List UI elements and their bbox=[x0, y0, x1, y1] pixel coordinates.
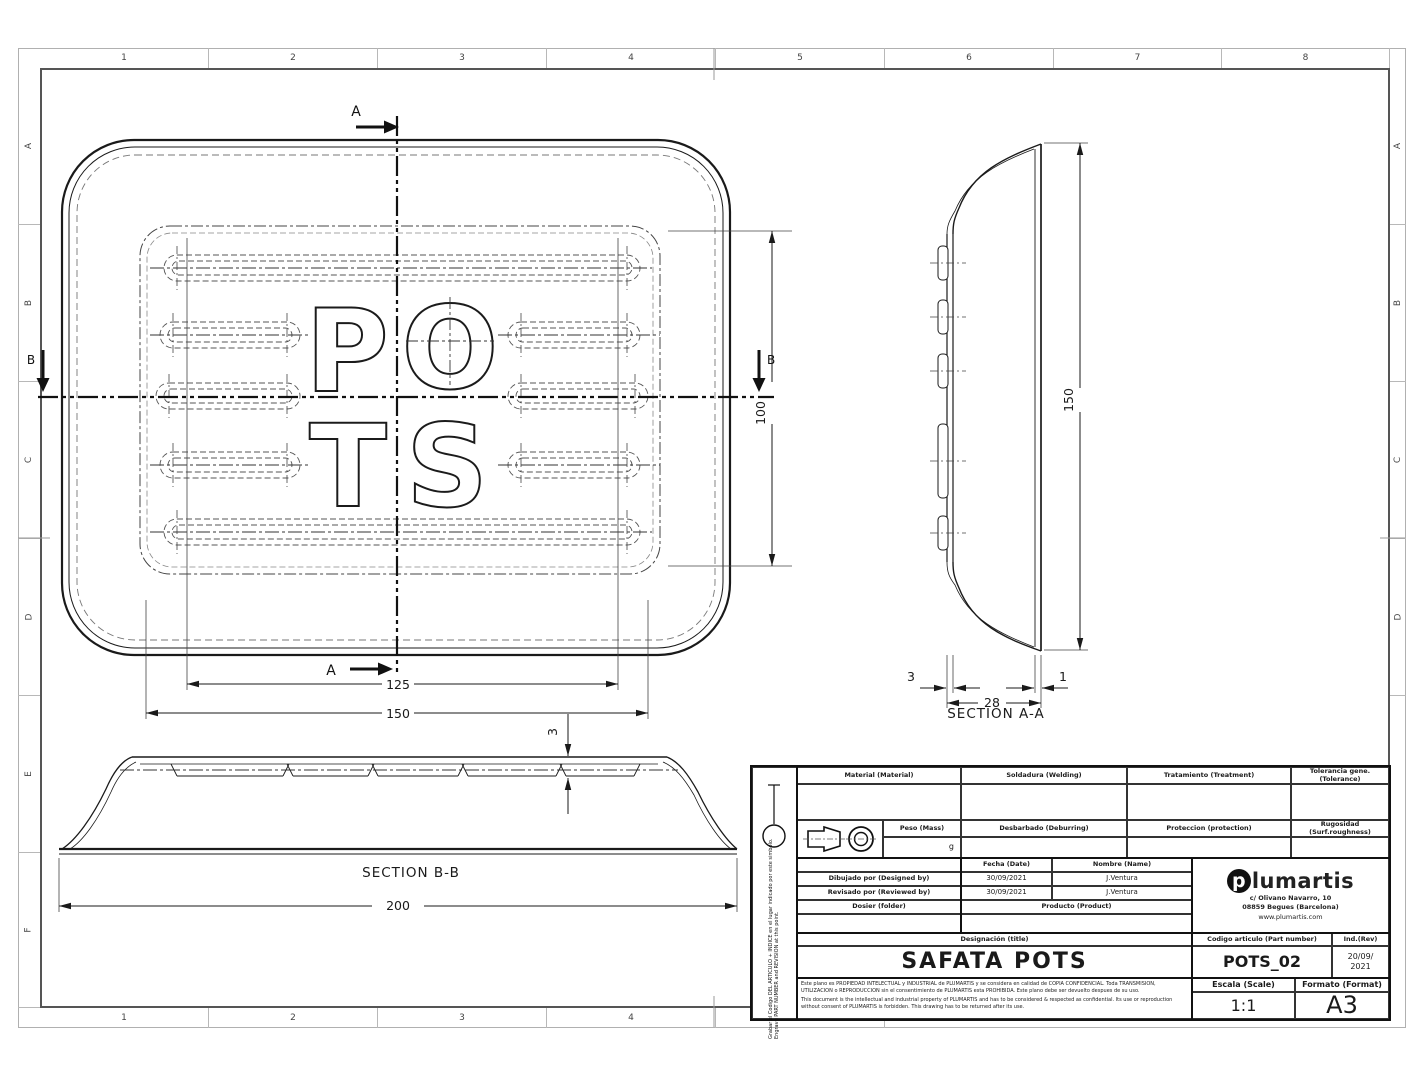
section-arrow-a-bottom: A bbox=[326, 663, 393, 680]
reviewed-name: J.Ventura bbox=[1052, 886, 1192, 900]
drawing-sheet: 1 2 3 4 5 6 7 8 1 2 3 4 5 A B C D E F A … bbox=[0, 0, 1424, 1075]
format-label: Formato (Format) bbox=[1295, 978, 1389, 992]
protection-label: Proteccion (protection) bbox=[1127, 820, 1291, 837]
title-block: Grabar el Codigo DEL ARTICULO + INDICE e… bbox=[750, 765, 1391, 1021]
scale-value: 1:1 bbox=[1192, 992, 1295, 1019]
section-label-b-left: B bbox=[27, 353, 35, 367]
company-website: www.plumartis.com bbox=[1242, 913, 1339, 922]
section-label-b-right: B bbox=[767, 353, 775, 367]
partnumber-value: POTS_02 bbox=[1192, 946, 1332, 978]
section-aa-title: SECTION A-A bbox=[947, 706, 1045, 722]
aa-extension-lines bbox=[947, 143, 1088, 708]
company-logo: plumartis bbox=[1227, 869, 1354, 893]
top-view: P O T S A A bbox=[27, 104, 792, 721]
dim-pattern-width: 125 bbox=[386, 677, 410, 692]
dim-bb-length: 200 bbox=[386, 898, 410, 913]
aa-profile bbox=[947, 144, 1041, 651]
material-value bbox=[797, 784, 961, 820]
emboss-letter-s: S bbox=[406, 400, 488, 533]
mass-label: Peso (Mass) bbox=[883, 820, 961, 837]
section-bb-title: SECTION B-B bbox=[362, 865, 460, 881]
format-value: A3 bbox=[1295, 992, 1389, 1019]
emboss-letters: P O T S bbox=[305, 282, 498, 533]
divider bbox=[1191, 858, 1193, 1019]
section-arrow-b-left: B bbox=[27, 350, 50, 392]
product-value bbox=[961, 914, 1192, 933]
partnumber-label: Codigo articulo (Part number) bbox=[1192, 933, 1332, 946]
legal-notice: Este plano es PROPIEDAD INTELECTUAL y IN… bbox=[797, 978, 1192, 1019]
tolerance-value bbox=[1291, 784, 1389, 820]
company-address: c/ Olivano Navarro, 10 08859 Begues (Bar… bbox=[1242, 894, 1339, 921]
protection-value bbox=[1127, 837, 1291, 858]
designation-value: SAFATA POTS bbox=[797, 946, 1192, 978]
emboss-letter-t: T bbox=[309, 400, 387, 533]
deburring-label: Desbarbado (Deburring) bbox=[961, 820, 1127, 837]
aa-dim-lines bbox=[920, 143, 1080, 703]
divider bbox=[797, 932, 1389, 934]
roughness-label: Rugosidad (Surf.roughness) bbox=[1291, 820, 1389, 837]
dim-bb-rib: 3 bbox=[545, 728, 560, 736]
treatment-value bbox=[1127, 784, 1291, 820]
folder-label: Dosier (folder) bbox=[797, 900, 961, 914]
name-label: Nombre (Name) bbox=[1052, 858, 1192, 872]
bb-profile bbox=[59, 757, 737, 854]
divider bbox=[960, 858, 962, 933]
product-label: Producto (Product) bbox=[961, 900, 1192, 914]
section-label-a-top: A bbox=[351, 104, 361, 120]
welding-label: Soldadura (Welding) bbox=[961, 767, 1127, 784]
company-address-line2: 08859 Begues (Barcelona) bbox=[1242, 903, 1339, 912]
sig-blank bbox=[797, 858, 961, 872]
welding-value bbox=[961, 784, 1127, 820]
company-block: plumartis c/ Olivano Navarro, 10 08859 B… bbox=[1192, 858, 1389, 933]
folder-value bbox=[797, 914, 961, 933]
designation-label: Designación (title) bbox=[797, 933, 1192, 946]
section-bb-view: 3 200 SECTION B-B bbox=[59, 714, 737, 913]
scale-label: Escala (Scale) bbox=[1192, 978, 1295, 992]
section-arrow-a-top: A bbox=[351, 104, 399, 134]
reviewed-label: Revisado por (Reviewed by) bbox=[797, 886, 961, 900]
logo-wordmark: lumartis bbox=[1252, 870, 1354, 893]
dim-aa-lip: 1 bbox=[1059, 669, 1067, 684]
material-label: Material (Material) bbox=[797, 767, 961, 784]
rev-value-line1: 20/09/ bbox=[1348, 952, 1374, 962]
section-aa-view: 150 3 28 1 SECTION A-A bbox=[907, 143, 1088, 722]
date-label: Fecha (Date) bbox=[961, 858, 1052, 872]
legal-notice-es: Este plano es PROPIEDAD INTELECTUAL y IN… bbox=[801, 981, 1188, 994]
deburring-value bbox=[961, 837, 1127, 858]
company-address-line1: c/ Olivano Navarro, 10 bbox=[1242, 894, 1339, 903]
rev-value: 20/09/ 2021 bbox=[1332, 946, 1389, 978]
dim-flat-width: 150 bbox=[386, 706, 410, 721]
designed-label: Dibujado por (Designed by) bbox=[797, 872, 961, 886]
designed-date: 30/09/2021 bbox=[961, 872, 1052, 886]
mass-value: g bbox=[883, 837, 961, 858]
designed-name: J.Ventura bbox=[1052, 872, 1192, 886]
dim-aa-wall: 3 bbox=[907, 669, 915, 684]
engrave-note: Grabar el Codigo DEL ARTICULO + INDICE e… bbox=[752, 835, 796, 1039]
treatment-label: Tratamiento (Treatment) bbox=[1127, 767, 1291, 784]
section-label-a-bottom: A bbox=[326, 663, 336, 679]
divider bbox=[797, 977, 1389, 979]
dim-pattern-height: 100 bbox=[753, 401, 768, 425]
rev-label: Ind.(Rev) bbox=[1332, 933, 1389, 946]
reviewed-date: 30/09/2021 bbox=[961, 886, 1052, 900]
divider bbox=[797, 857, 1389, 859]
projection-symbol-cell bbox=[797, 820, 883, 858]
dim-aa-height: 150 bbox=[1061, 388, 1076, 412]
roughness-value bbox=[1291, 837, 1389, 858]
rev-value-line2: 2021 bbox=[1350, 962, 1370, 972]
first-angle-projection-icon bbox=[798, 821, 882, 857]
flat-top-region-inner bbox=[147, 233, 653, 567]
legal-notice-en: This document is the intellectual and in… bbox=[801, 997, 1188, 1010]
flat-top-region bbox=[140, 226, 660, 574]
tolerance-label: Tolerancia gene. (Tolerance) bbox=[1291, 767, 1389, 784]
logo-p-icon: p bbox=[1227, 869, 1251, 893]
